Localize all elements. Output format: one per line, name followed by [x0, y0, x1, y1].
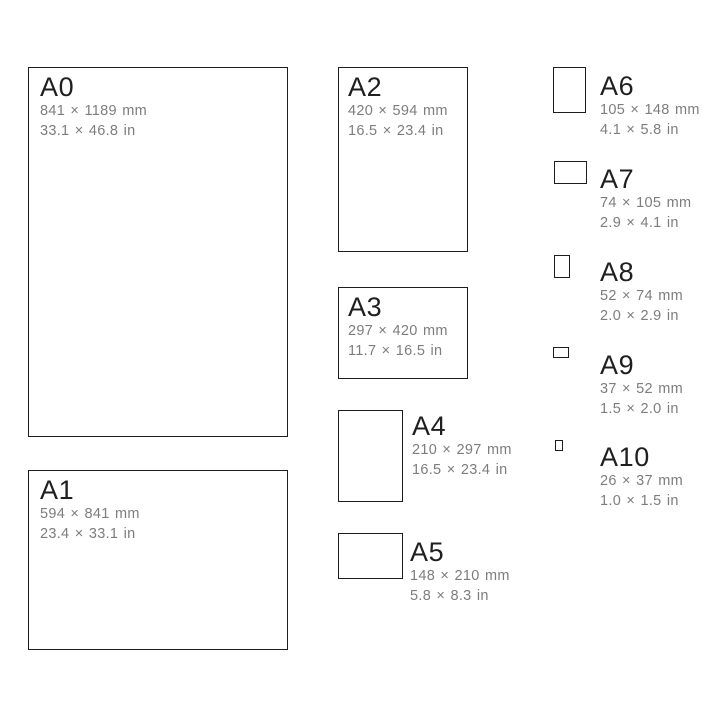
- paper-name-a4: A4: [412, 411, 512, 441]
- paper-name-a0: A0: [40, 72, 147, 102]
- paper-in-a10: 1.0 × 1.5 in: [600, 492, 683, 512]
- paper-in-a6: 4.1 × 5.8 in: [600, 121, 700, 141]
- paper-name-a3: A3: [348, 292, 448, 322]
- paper-rect-a10: [555, 440, 563, 451]
- paper-label-a9: A9 37 × 52 mm 1.5 × 2.0 in: [600, 350, 683, 419]
- paper-name-a8: A8: [600, 257, 683, 287]
- paper-rect-a8: [554, 255, 570, 278]
- paper-in-a2: 16.5 × 23.4 in: [348, 122, 448, 142]
- paper-mm-a5: 148 × 210 mm: [410, 567, 510, 587]
- paper-rect-a5: [338, 533, 403, 579]
- paper-mm-a7: 74 × 105 mm: [600, 194, 691, 214]
- paper-label-a3: A3 297 × 420 mm 11.7 × 16.5 in: [348, 292, 448, 361]
- paper-rect-a9: [553, 347, 569, 358]
- paper-name-a7: A7: [600, 164, 691, 194]
- paper-mm-a1: 594 × 841 mm: [40, 505, 140, 525]
- paper-in-a0: 33.1 × 46.8 in: [40, 122, 147, 142]
- paper-in-a3: 11.7 × 16.5 in: [348, 342, 448, 362]
- paper-in-a9: 1.5 × 2.0 in: [600, 400, 683, 420]
- paper-label-a2: A2 420 × 594 mm 16.5 × 23.4 in: [348, 72, 448, 141]
- paper-rect-a4: [338, 410, 403, 502]
- paper-label-a10: A10 26 × 37 mm 1.0 × 1.5 in: [600, 442, 683, 511]
- paper-in-a1: 23.4 × 33.1 in: [40, 525, 140, 545]
- paper-name-a5: A5: [410, 537, 510, 567]
- paper-mm-a2: 420 × 594 mm: [348, 102, 448, 122]
- paper-label-a5: A5 148 × 210 mm 5.8 × 8.3 in: [410, 537, 510, 606]
- paper-in-a4: 16.5 × 23.4 in: [412, 461, 512, 481]
- paper-name-a9: A9: [600, 350, 683, 380]
- paper-rect-a6: [553, 67, 586, 113]
- paper-label-a4: A4 210 × 297 mm 16.5 × 23.4 in: [412, 411, 512, 480]
- paper-size-diagram: A0 841 × 1189 mm 33.1 × 46.8 in A1 594 ×…: [0, 0, 720, 720]
- paper-name-a6: A6: [600, 71, 700, 101]
- paper-rect-a7: [554, 161, 587, 184]
- paper-mm-a3: 297 × 420 mm: [348, 322, 448, 342]
- paper-mm-a8: 52 × 74 mm: [600, 287, 683, 307]
- paper-label-a6: A6 105 × 148 mm 4.1 × 5.8 in: [600, 71, 700, 140]
- paper-mm-a4: 210 × 297 mm: [412, 441, 512, 461]
- paper-in-a8: 2.0 × 2.9 in: [600, 307, 683, 327]
- paper-mm-a0: 841 × 1189 mm: [40, 102, 147, 122]
- paper-label-a8: A8 52 × 74 mm 2.0 × 2.9 in: [600, 257, 683, 326]
- paper-name-a1: A1: [40, 475, 140, 505]
- paper-in-a7: 2.9 × 4.1 in: [600, 214, 691, 234]
- paper-mm-a10: 26 × 37 mm: [600, 472, 683, 492]
- paper-label-a0: A0 841 × 1189 mm 33.1 × 46.8 in: [40, 72, 147, 141]
- paper-label-a1: A1 594 × 841 mm 23.4 × 33.1 in: [40, 475, 140, 544]
- paper-name-a2: A2: [348, 72, 448, 102]
- paper-label-a7: A7 74 × 105 mm 2.9 × 4.1 in: [600, 164, 691, 233]
- paper-mm-a6: 105 × 148 mm: [600, 101, 700, 121]
- paper-mm-a9: 37 × 52 mm: [600, 380, 683, 400]
- paper-name-a10: A10: [600, 442, 683, 472]
- paper-in-a5: 5.8 × 8.3 in: [410, 587, 510, 607]
